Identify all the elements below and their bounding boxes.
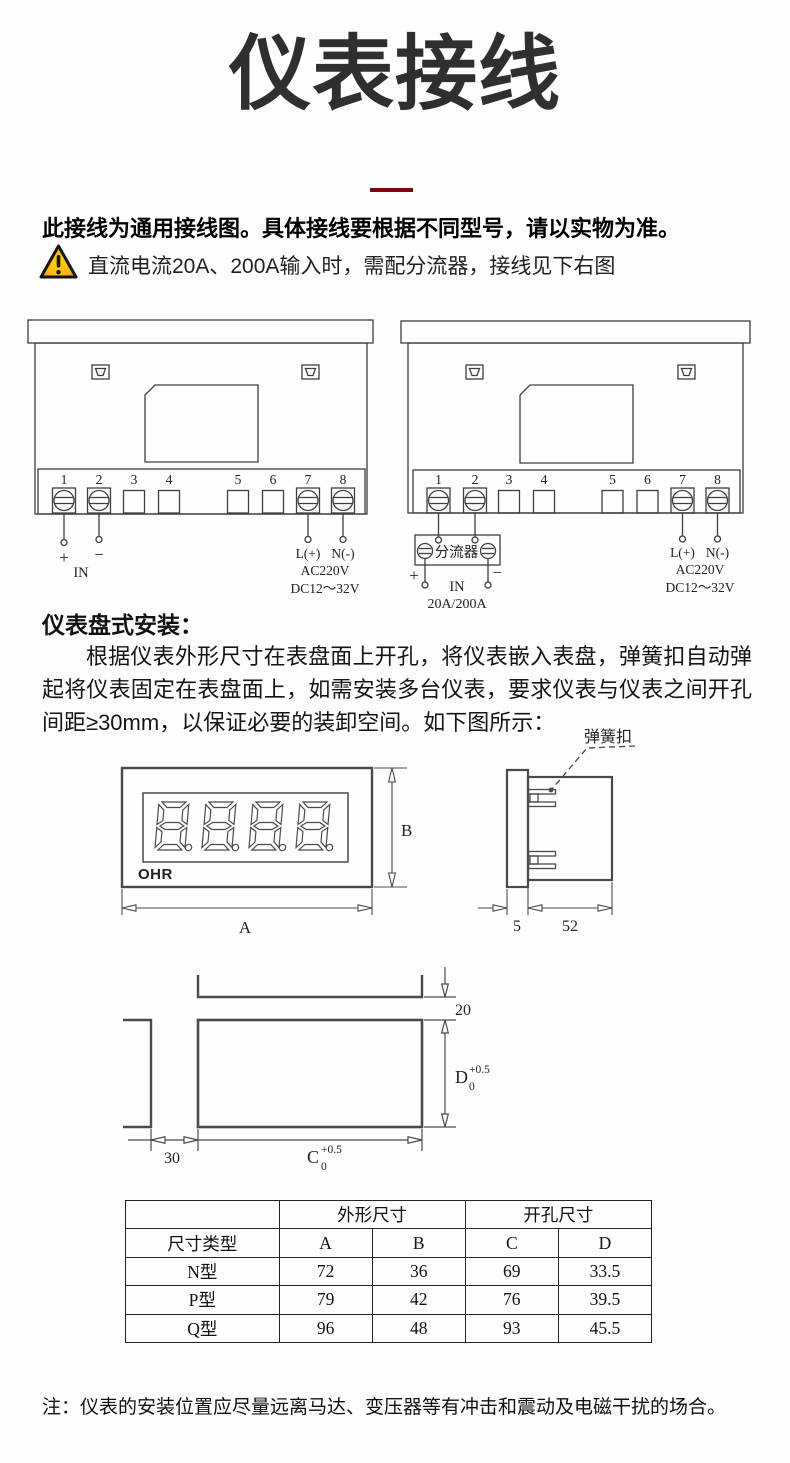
terminal-number: 2	[96, 472, 103, 487]
ac-supply-label: AC220V	[676, 562, 725, 577]
label-area	[145, 385, 258, 462]
empty-cell	[126, 1201, 280, 1229]
warning-row: 直流电流20A、200A输入时，需配分流器，接线见下右图	[38, 243, 615, 282]
ac-supply-label: AC220V	[301, 563, 350, 578]
dimension-D: D +0.5 0	[442, 1020, 490, 1127]
dim-52-label: 52	[562, 918, 578, 935]
live-label: L(+)	[296, 546, 321, 561]
terminal-number: 1	[435, 472, 442, 487]
dimension-30-C: 30 C +0.5 0	[128, 1137, 422, 1173]
dim-B-label: B	[401, 821, 412, 840]
group-header-outline: 外形尺寸	[279, 1201, 465, 1229]
terminal-number: 2	[472, 472, 479, 487]
dim-20-label: 20	[455, 1002, 471, 1019]
terminal-number: 6	[270, 472, 277, 487]
spring-clip	[529, 852, 556, 869]
minus-label: −	[94, 545, 104, 564]
screw-terminals	[427, 488, 729, 513]
dimension-depth: 5 52	[478, 882, 612, 935]
value-cell: 69	[465, 1257, 558, 1285]
upper-cutout	[198, 975, 422, 997]
terminal-number: 7	[679, 472, 686, 487]
terminal-number: 5	[609, 472, 616, 487]
wiring-diagram-shunt: 1 2 3 4 5 6 7 8 分流器 + − IN 20A/200A	[393, 315, 765, 615]
meter-rear-body	[401, 321, 750, 513]
terminal-number: 8	[714, 472, 721, 487]
cutout-dimension-drawing: 20 D +0.5 0 30 C +0.5 0	[100, 955, 530, 1180]
value-cell: 96	[279, 1314, 372, 1342]
neutral-label: N(-)	[706, 545, 729, 560]
wiring-diagram-direct: 1 2 3 4 5 6 7 8 + − IN L(+) N(-) AC220V …	[18, 315, 383, 610]
value-cell: 45.5	[558, 1314, 651, 1342]
dimension-B: B	[374, 768, 412, 887]
plain-terminals	[124, 491, 284, 514]
table-row: 外形尺寸 开孔尺寸	[126, 1201, 652, 1229]
terminal-number: 7	[305, 472, 312, 487]
dimension-A: A	[122, 889, 372, 937]
plain-terminals	[499, 491, 659, 514]
dim-D-sup: +0.5	[469, 1064, 490, 1076]
dim-30-label: 30	[164, 1150, 180, 1167]
dim-5-label: 5	[513, 918, 521, 935]
leader-line	[552, 746, 635, 789]
main-cutout	[198, 1020, 422, 1127]
col-header-a: A	[279, 1229, 372, 1257]
dc-supply-label: DC12～32V	[290, 581, 359, 596]
col-header-b: B	[372, 1229, 465, 1257]
clip-slot-icon	[302, 365, 319, 379]
dimension-table: 外形尺寸 开孔尺寸 尺寸类型 A B C D N型 72 36 69 33.5 …	[125, 1200, 652, 1343]
col-header-d: D	[558, 1229, 651, 1257]
terminal-number: 6	[644, 472, 651, 487]
value-cell: 93	[465, 1314, 558, 1342]
dimension-20: 20	[442, 967, 471, 1019]
meter-front-view: OHR	[122, 768, 372, 887]
dc-supply-label: DC12～32V	[665, 580, 734, 595]
value-cell: 36	[372, 1257, 465, 1285]
terminal-numbers: 1 2 3 4 5 6 7 8	[61, 472, 347, 487]
value-cell: 76	[465, 1286, 558, 1314]
spring-clip-label: 弹簧扣	[584, 727, 632, 746]
terminal-number: 5	[235, 472, 242, 487]
clip-slot-icon	[678, 365, 695, 379]
installation-note: 注：仪表的安装位置应尽量远离马达、变压器等有冲击和震动及电磁干扰的场合。	[42, 1392, 726, 1419]
page-title: 仪表接线	[0, 28, 790, 122]
type-cell: Q型	[126, 1314, 280, 1342]
plus-label: +	[59, 548, 69, 567]
table-row: 尺寸类型 A B C D	[126, 1229, 652, 1257]
meter-rear-body	[28, 320, 373, 514]
terminal-number: 1	[61, 472, 68, 487]
power-wires	[680, 513, 721, 542]
terminal-number: 4	[541, 472, 548, 487]
dim-C-letter: C	[307, 1147, 319, 1167]
label-area	[520, 385, 633, 463]
meter-side-view: 弹簧扣	[507, 727, 635, 887]
terminal-number: 4	[166, 472, 173, 487]
screw-terminals	[53, 488, 355, 513]
warning-text: 直流电流20A、200A输入时，需配分流器，接线见下右图	[88, 243, 615, 280]
col-header-c: C	[465, 1229, 558, 1257]
dim-D-letter: D	[455, 1067, 468, 1087]
value-cell: 72	[279, 1257, 372, 1285]
general-wiring-notice: 此接线为通用接线图。具体接线要根据不同型号，请以实物为准。	[42, 211, 680, 243]
warning-icon	[38, 243, 79, 282]
value-cell: 33.5	[558, 1257, 651, 1285]
shunt-label: 分流器	[435, 544, 479, 561]
brand-logo: OHR	[138, 866, 173, 883]
neutral-label: N(-)	[331, 546, 354, 561]
dim-D-sub: 0	[469, 1081, 475, 1093]
input-wires	[61, 513, 346, 546]
clip-slot-icon	[92, 365, 109, 379]
outline-dimension-drawing: OHR B A 弹簧扣	[95, 718, 695, 943]
terminal-number: 3	[131, 472, 138, 487]
panel-install-heading: 仪表盘式安装：	[42, 606, 203, 640]
minus-label: −	[492, 563, 502, 582]
value-cell: 42	[372, 1286, 465, 1314]
table-row: P型 79 42 76 39.5	[126, 1286, 652, 1314]
cutout-shapes	[123, 975, 422, 1127]
dim-C-sup: +0.5	[321, 1144, 342, 1156]
table-row: N型 72 36 69 33.5	[126, 1257, 652, 1285]
dim-C-sub: 0	[321, 1161, 327, 1173]
terminal-numbers: 1 2 3 4 5 6 7 8	[435, 472, 721, 487]
current-range-label: 20A/200A	[427, 597, 487, 612]
value-cell: 48	[372, 1314, 465, 1342]
dim-A-label: A	[239, 918, 252, 937]
group-header-cutout: 开孔尺寸	[465, 1201, 651, 1229]
clip-slot-icon	[466, 365, 483, 379]
value-cell: 79	[279, 1286, 372, 1314]
adjacent-cutout	[123, 1020, 151, 1127]
in-label: IN	[73, 565, 89, 581]
type-cell: N型	[126, 1257, 280, 1285]
value-cell: 39.5	[558, 1286, 651, 1314]
table-row: Q型 96 48 93 45.5	[126, 1314, 652, 1342]
type-cell: P型	[126, 1286, 280, 1314]
terminal-number: 8	[340, 472, 347, 487]
title-underline	[370, 188, 413, 192]
col-header-type: 尺寸类型	[126, 1229, 280, 1257]
live-label: L(+)	[670, 545, 695, 560]
in-label: IN	[449, 579, 465, 595]
terminal-number: 3	[506, 472, 513, 487]
plus-label: +	[409, 566, 419, 585]
